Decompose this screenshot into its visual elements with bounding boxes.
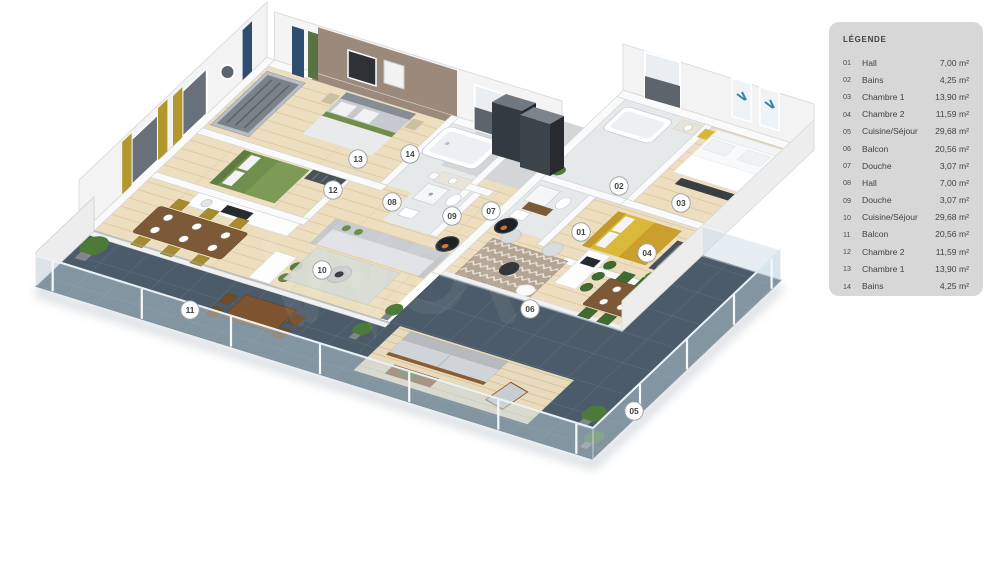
green-wall-panel bbox=[308, 31, 318, 80]
legend-row-area: 11,59 m² bbox=[936, 247, 969, 257]
legend-row-area: 11,59 m² bbox=[936, 109, 969, 119]
legend-row-number: 10 bbox=[843, 213, 862, 222]
legend-row-number: 13 bbox=[843, 264, 862, 273]
svg-text:02: 02 bbox=[614, 181, 624, 191]
svg-text:01: 01 bbox=[576, 227, 586, 237]
svg-text:08: 08 bbox=[387, 197, 397, 207]
room-marker-14: 14 bbox=[401, 145, 419, 163]
legend-row-area: 3,07 m² bbox=[940, 195, 969, 205]
room-marker-07: 07 bbox=[482, 202, 500, 220]
legend-row-number: 03 bbox=[843, 92, 862, 101]
svg-text:06: 06 bbox=[525, 304, 535, 314]
legend-row-area: 7,00 m² bbox=[940, 58, 969, 68]
legend-row-label: Cuisine/Séjour bbox=[862, 126, 935, 136]
legend-row: 02 Bains 4,25 m² bbox=[829, 71, 983, 88]
legend-row-label: Hall bbox=[862, 58, 940, 68]
legend-row-number: 06 bbox=[843, 144, 862, 153]
legend-row: 13 Chambre 1 13,90 m² bbox=[829, 260, 983, 277]
legend-row-area: 4,25 m² bbox=[940, 281, 969, 291]
room-marker-01: 01 bbox=[572, 223, 590, 241]
legend-row: 10 Cuisine/Séjour 29,68 m² bbox=[829, 209, 983, 226]
svg-text:04: 04 bbox=[642, 248, 652, 258]
room-marker-12: 12 bbox=[324, 181, 342, 199]
svg-text:03: 03 bbox=[676, 198, 686, 208]
curtain-mustard-3 bbox=[173, 87, 182, 146]
porthole-window bbox=[221, 65, 235, 79]
legend-row-label: Bains bbox=[862, 75, 940, 85]
bird-art-frame-1 bbox=[732, 78, 751, 122]
legend-row-area: 13,90 m² bbox=[935, 264, 969, 274]
svg-text:10: 10 bbox=[317, 265, 327, 275]
legend-row-area: 20,56 m² bbox=[935, 144, 969, 154]
svg-text:07: 07 bbox=[486, 206, 496, 216]
legend-row-label: Douche bbox=[862, 195, 940, 205]
svg-text:05: 05 bbox=[629, 406, 639, 416]
legend-row-number: 02 bbox=[843, 75, 862, 84]
room-marker-03: 03 bbox=[672, 194, 690, 212]
legend-row-number: 12 bbox=[843, 247, 862, 256]
legend-row-label: Chambre 2 bbox=[862, 109, 936, 119]
curtain-blue-2 bbox=[292, 26, 304, 78]
legend-row: 07 Douche 3,07 m² bbox=[829, 157, 983, 174]
legend-row: 14 Bains 4,25 m² bbox=[829, 277, 983, 294]
curtain-blue-1 bbox=[243, 21, 252, 80]
room-marker-06: 06 bbox=[521, 300, 539, 318]
legend-row-area: 3,07 m² bbox=[940, 161, 969, 171]
legend-row-number: 09 bbox=[843, 196, 862, 205]
legend-row: 09 Douche 3,07 m² bbox=[829, 192, 983, 209]
room-marker-10: 10 bbox=[313, 261, 331, 279]
legend-row-label: Douche bbox=[862, 161, 940, 171]
legend-row: 06 Balcon 20,56 m² bbox=[829, 140, 983, 157]
svg-text:13: 13 bbox=[353, 154, 363, 164]
legend-row-number: 01 bbox=[843, 58, 862, 67]
legend-row-area: 29,68 m² bbox=[935, 126, 969, 136]
legend-row: 12 Chambre 2 11,59 m² bbox=[829, 243, 983, 260]
legend-row-label: Balcon bbox=[862, 144, 935, 154]
legend-row: 08 Hall 7,00 m² bbox=[829, 174, 983, 191]
room-marker-04: 04 bbox=[638, 244, 656, 262]
legend-row-number: 14 bbox=[843, 282, 862, 291]
legend-row-area: 20,56 m² bbox=[935, 229, 969, 239]
legend-row: 01 Hall 7,00 m² bbox=[829, 54, 983, 71]
legend-row-label: Balcon bbox=[862, 229, 935, 239]
room-marker-09: 09 bbox=[443, 207, 461, 225]
legend-row-label: Hall bbox=[862, 178, 940, 188]
legend-row-number: 08 bbox=[843, 178, 862, 187]
curtain-mustard-2 bbox=[158, 99, 167, 160]
legend-row-label: Chambre 2 bbox=[862, 247, 936, 257]
legend-row-label: Chambre 1 bbox=[862, 92, 935, 102]
legend-row-area: 13,90 m² bbox=[935, 92, 969, 102]
legend-title: LÉGENDE bbox=[829, 22, 983, 44]
svg-text:09: 09 bbox=[447, 211, 457, 221]
floorplan-page: 0102030405060708091011121314 LÉGENDE 01 … bbox=[0, 0, 1000, 562]
svg-text:11: 11 bbox=[186, 305, 195, 315]
room-marker-05: 05 bbox=[625, 402, 643, 420]
legend-row: 11 Balcon 20,56 m² bbox=[829, 226, 983, 243]
legend-row-number: 04 bbox=[843, 110, 862, 119]
room-marker-11: 11 bbox=[181, 301, 199, 319]
legend-row: 05 Cuisine/Séjour 29,68 m² bbox=[829, 123, 983, 140]
legend-panel: LÉGENDE 01 Hall 7,00 m² 02 Bains 4,25 m²… bbox=[829, 22, 983, 296]
room-marker-02: 02 bbox=[610, 177, 628, 195]
legend-row: 03 Chambre 1 13,90 m² bbox=[829, 88, 983, 105]
room-marker-08: 08 bbox=[383, 193, 401, 211]
legend-row-label: Chambre 1 bbox=[862, 264, 935, 274]
curtain-mustard-1 bbox=[122, 133, 131, 194]
legend-row-number: 07 bbox=[843, 161, 862, 170]
bird-art-frame-2 bbox=[760, 87, 779, 131]
legend-rows: 01 Hall 7,00 m² 02 Bains 4,25 m² 03 Cham… bbox=[829, 54, 983, 295]
legend-row-label: Cuisine/Séjour bbox=[862, 212, 935, 222]
legend-row-number: 11 bbox=[843, 230, 862, 239]
legend-row-area: 4,25 m² bbox=[940, 75, 969, 85]
svg-text:14: 14 bbox=[405, 149, 415, 159]
legend-row-label: Bains bbox=[862, 281, 940, 291]
legend-row: 04 Chambre 2 11,59 m² bbox=[829, 106, 983, 123]
room-marker-13: 13 bbox=[349, 150, 367, 168]
legend-row-area: 29,68 m² bbox=[935, 212, 969, 222]
legend-row-number: 05 bbox=[843, 127, 862, 136]
svg-text:12: 12 bbox=[328, 185, 338, 195]
legend-row-area: 7,00 m² bbox=[940, 178, 969, 188]
